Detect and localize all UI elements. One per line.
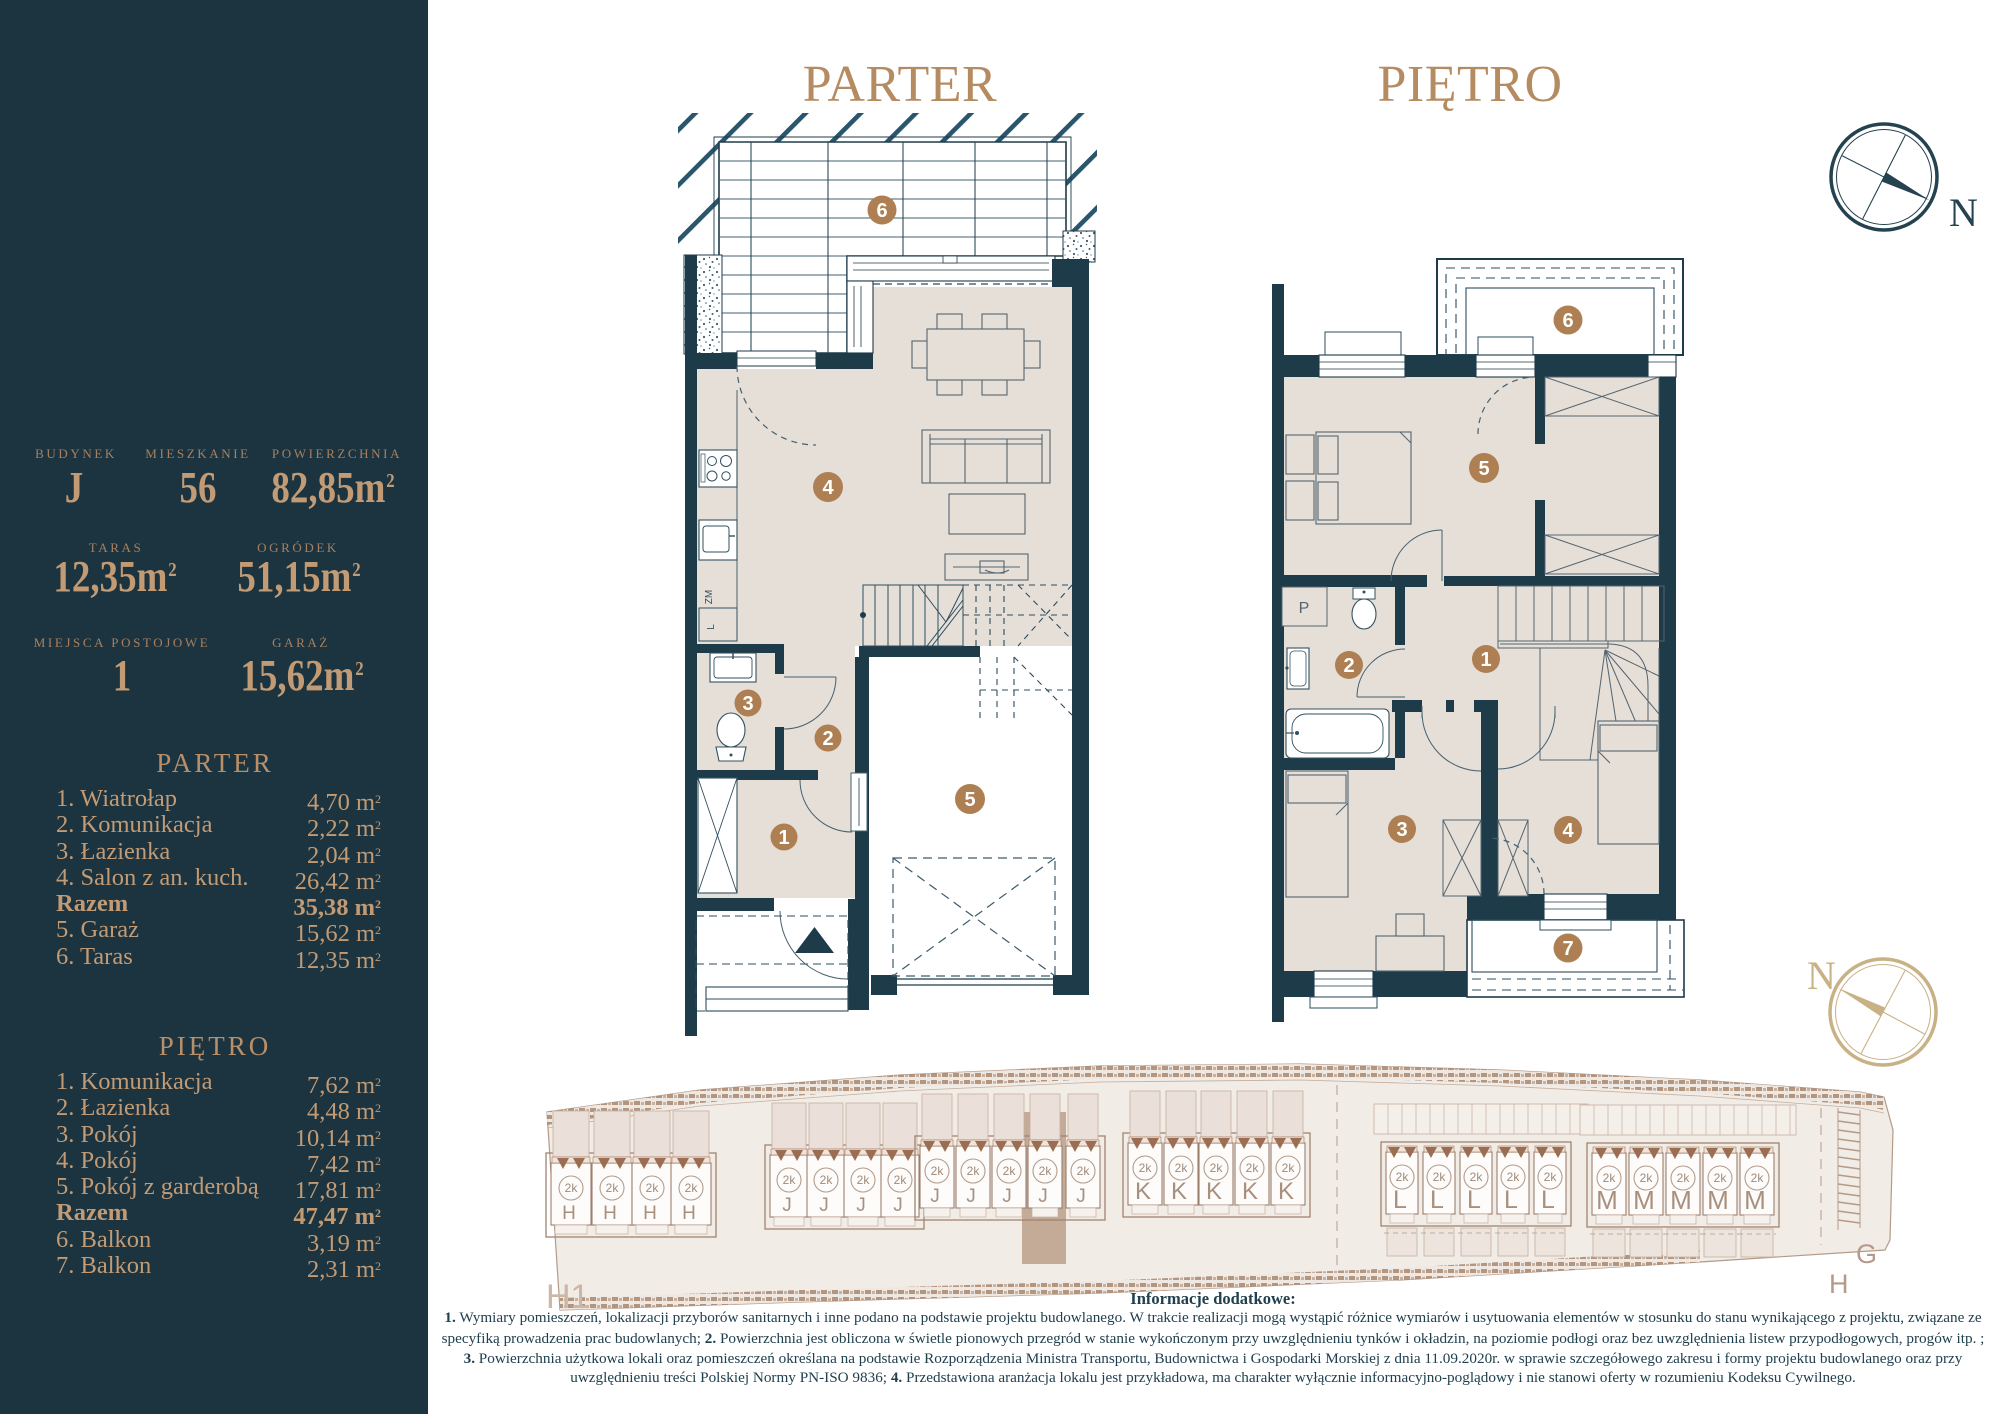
svg-text:2k: 2k <box>1470 1170 1484 1184</box>
svg-text:L: L <box>1467 1186 1481 1214</box>
svg-text:L: L <box>1430 1186 1444 1214</box>
svg-text:5: 5 <box>1478 458 1489 480</box>
svg-text:J: J <box>893 1195 903 1216</box>
svg-text:1: 1 <box>1480 649 1491 671</box>
svg-text:H: H <box>603 1203 617 1224</box>
svg-text:K: K <box>1278 1178 1294 1205</box>
svg-text:J: J <box>966 1186 976 1207</box>
svg-text:4: 4 <box>1562 820 1574 842</box>
svg-text:2k: 2k <box>894 1173 908 1187</box>
svg-text:2k: 2k <box>1433 1170 1447 1184</box>
svg-text:2k: 2k <box>1677 1171 1691 1185</box>
svg-text:4: 4 <box>822 477 834 499</box>
svg-text:2k: 2k <box>1039 1164 1053 1178</box>
svg-text:2k: 2k <box>967 1164 981 1178</box>
svg-text:2k: 2k <box>1003 1164 1017 1178</box>
svg-text:J: J <box>819 1195 829 1216</box>
svg-text:2k: 2k <box>565 1181 579 1195</box>
svg-text:2k: 2k <box>1210 1161 1224 1175</box>
svg-text:K: K <box>1135 1178 1151 1205</box>
svg-text:2k: 2k <box>685 1181 699 1195</box>
svg-text:2k: 2k <box>1714 1171 1728 1185</box>
svg-text:2k: 2k <box>1077 1164 1091 1178</box>
svg-text:2: 2 <box>822 728 833 750</box>
svg-text:K: K <box>1242 1178 1258 1205</box>
svg-text:2k: 2k <box>857 1173 871 1187</box>
svg-text:H: H <box>643 1203 657 1224</box>
svg-text:2k: 2k <box>1507 1170 1521 1184</box>
svg-text:J: J <box>1038 1186 1048 1207</box>
svg-text:L: L <box>1393 1186 1407 1214</box>
svg-text:J: J <box>782 1195 792 1216</box>
svg-text:2k: 2k <box>646 1181 660 1195</box>
svg-text:N: N <box>1807 953 1836 998</box>
svg-text:N: N <box>1949 190 1978 235</box>
svg-text:5: 5 <box>964 789 975 811</box>
svg-text:L: L <box>1541 1186 1555 1214</box>
svg-text:3: 3 <box>742 693 753 715</box>
svg-text:2k: 2k <box>1246 1161 1260 1175</box>
svg-text:2k: 2k <box>1544 1170 1558 1184</box>
svg-text:1: 1 <box>778 827 789 849</box>
svg-text:2k: 2k <box>1282 1161 1296 1175</box>
svg-text:H: H <box>682 1203 696 1224</box>
svg-text:J: J <box>856 1195 866 1216</box>
svg-text:L: L <box>706 624 717 630</box>
svg-text:G: G <box>1856 1239 1877 1269</box>
svg-text:M: M <box>1744 1185 1766 1215</box>
svg-text:2k: 2k <box>1139 1161 1153 1175</box>
svg-text:J: J <box>930 1186 940 1207</box>
svg-text:K: K <box>1206 1178 1222 1205</box>
svg-text:2k: 2k <box>1603 1171 1617 1185</box>
svg-text:3: 3 <box>1396 819 1407 841</box>
svg-text:K: K <box>1171 1178 1187 1205</box>
svg-text:M: M <box>1707 1185 1729 1215</box>
svg-text:M: M <box>1670 1185 1692 1215</box>
svg-text:M: M <box>1596 1185 1618 1215</box>
svg-text:2k: 2k <box>931 1164 945 1178</box>
svg-text:L: L <box>1504 1186 1518 1214</box>
svg-text:6: 6 <box>1562 310 1573 332</box>
svg-text:H: H <box>562 1203 576 1224</box>
svg-text:H: H <box>1829 1269 1849 1299</box>
svg-text:2k: 2k <box>783 1173 797 1187</box>
svg-text:ZM: ZM <box>704 590 715 604</box>
svg-text:2k: 2k <box>1396 1170 1410 1184</box>
svg-text:2k: 2k <box>606 1181 620 1195</box>
svg-text:7: 7 <box>1562 938 1573 960</box>
svg-text:2k: 2k <box>1751 1171 1765 1185</box>
svg-text:M: M <box>1633 1185 1655 1215</box>
svg-text:6: 6 <box>876 200 887 222</box>
svg-text:J: J <box>1076 1186 1086 1207</box>
svg-text:J: J <box>1002 1186 1012 1207</box>
svg-text:2k: 2k <box>1640 1171 1654 1185</box>
svg-text:P: P <box>1299 600 1310 617</box>
svg-text:2k: 2k <box>1175 1161 1189 1175</box>
svg-text:2: 2 <box>1343 655 1354 677</box>
svg-text:2k: 2k <box>820 1173 834 1187</box>
